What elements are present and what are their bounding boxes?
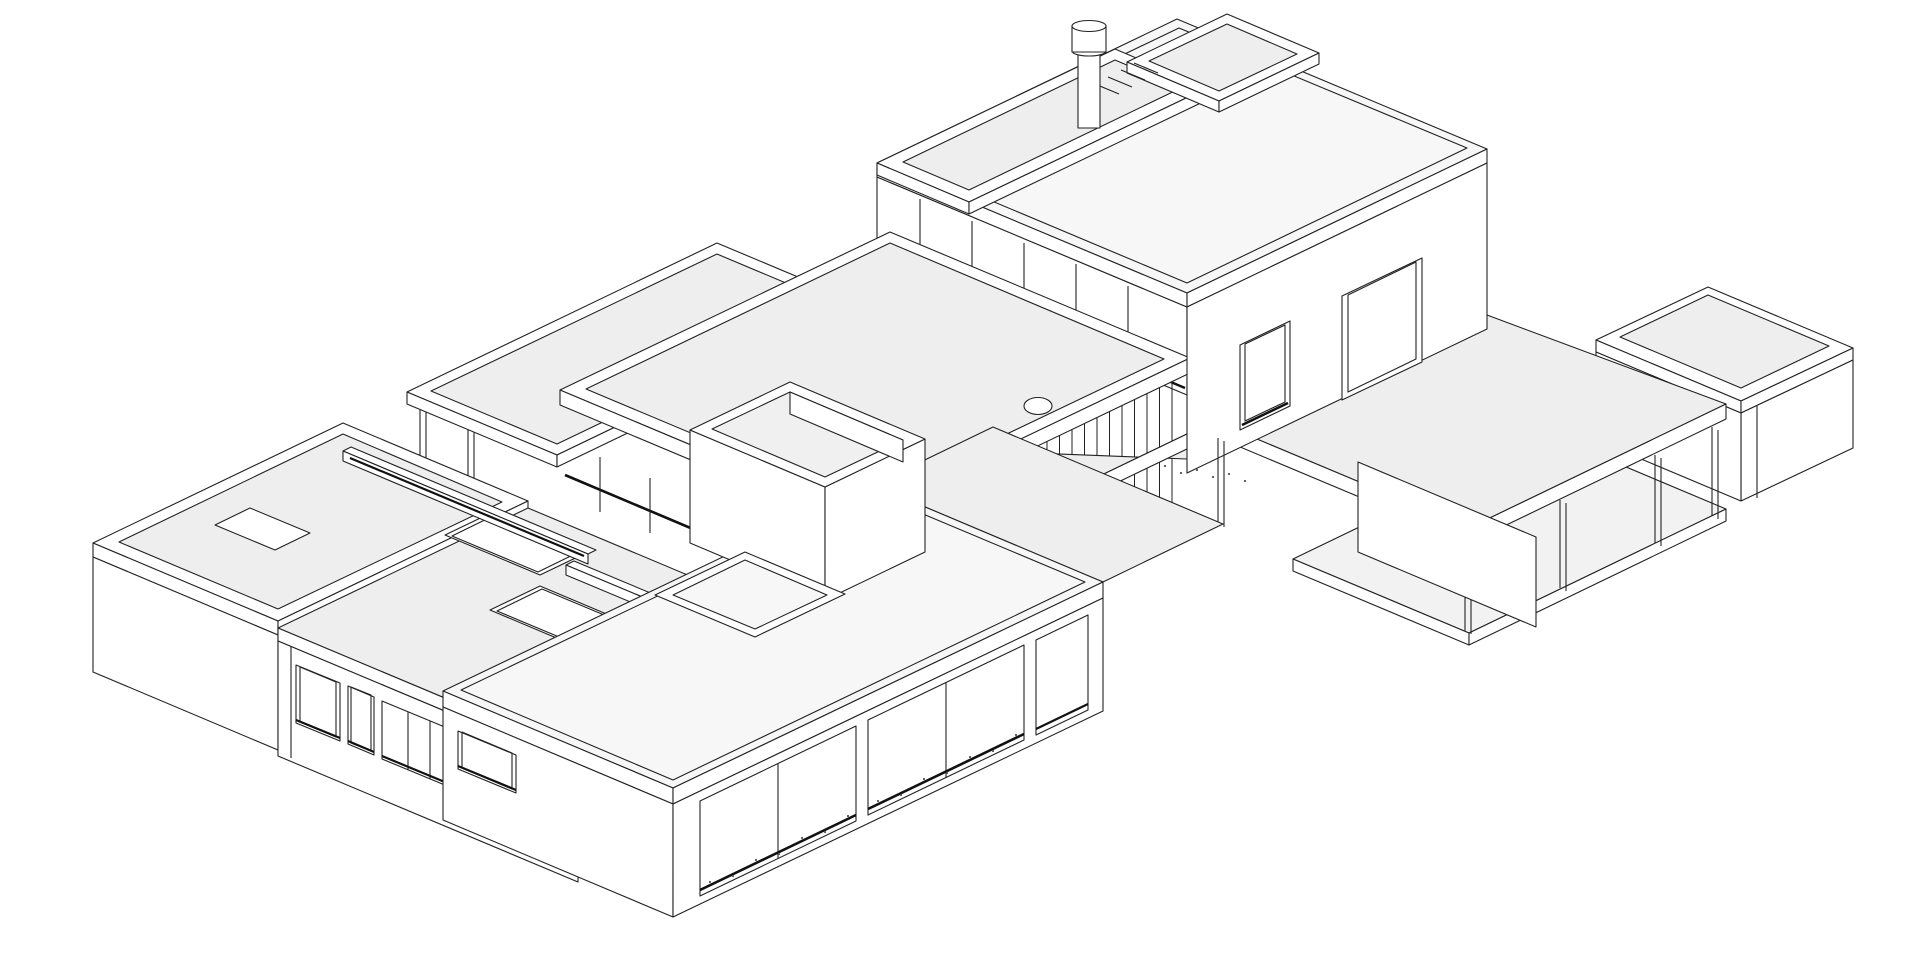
terrace-speckles-dot	[1196, 469, 1198, 471]
roof-vent	[1024, 398, 1052, 415]
fv-sill-speckles-dot	[847, 815, 849, 817]
terrace-speckles	[1164, 465, 1246, 482]
fv-sill-speckles-dot	[923, 778, 925, 780]
axonometric-house-drawing	[0, 0, 1920, 960]
terrace-speckles-dot	[1228, 473, 1230, 475]
fv-sill-speckles-dot	[732, 875, 734, 877]
fv-sill-speckles-dot	[755, 859, 757, 861]
fv-sill-speckles-dot	[969, 756, 971, 758]
terrace-speckles-dot	[1164, 465, 1166, 467]
terrace-speckles-dot	[1244, 480, 1246, 482]
fv-sill-speckles-dot	[709, 881, 711, 883]
fv-sill-speckles-dot	[778, 853, 780, 855]
chimney-cap-top	[1072, 21, 1106, 32]
house-drawing-svg	[0, 0, 1920, 960]
fv-sill-speckles-dot	[801, 837, 803, 839]
fv-sill-speckles-dot	[992, 750, 994, 752]
fv-sill-speckles-dot	[946, 772, 948, 774]
fv-sill-speckles-dot	[1015, 734, 1017, 736]
lw-window-b	[348, 686, 374, 755]
main-clerestory-sill	[565, 475, 700, 532]
fv-sill-speckles-dot	[877, 800, 879, 802]
fv-sill-speckles-dot	[900, 794, 902, 796]
terrace-speckles-dot	[1180, 472, 1182, 474]
chimney-shaft	[1078, 50, 1100, 128]
fv-sill-speckles-dot	[824, 831, 826, 833]
terrace-speckles-dot	[1212, 476, 1214, 478]
